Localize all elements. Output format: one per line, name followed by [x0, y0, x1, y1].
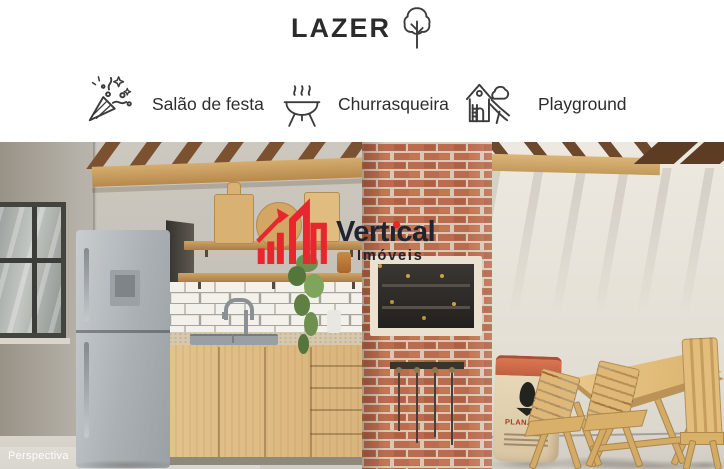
brand-subtitle: Imóveis [357, 248, 435, 264]
white-canister [327, 310, 341, 333]
cabinet-door-gap [310, 347, 312, 457]
page-title: LAZER [291, 12, 391, 44]
drawer-gap [310, 387, 364, 389]
grill-rack [382, 284, 470, 287]
tree-icon [401, 6, 433, 50]
shelf-bracket [198, 282, 201, 289]
hanging-skewer [434, 369, 436, 437]
faucet [224, 298, 254, 320]
watermark-vertical-imoveis: Vertıcal Imóveis [250, 188, 464, 276]
fridge-handle [84, 342, 89, 438]
perspective-render: PLANALTO [0, 142, 724, 469]
window-reflection [0, 207, 61, 333]
hanging-skewer [416, 369, 418, 443]
vertical-imoveis-buildings-logo [256, 190, 336, 272]
cabinet-grain [168, 345, 366, 465]
amenity-label-playground: Playground [538, 94, 627, 115]
amenity-label-churrasqueira: Churrasqueira [338, 94, 449, 115]
sink-basin [190, 334, 278, 345]
window-mullion [0, 258, 61, 263]
brand-i-dot [393, 221, 400, 228]
shelf-bracket [272, 282, 275, 289]
shelf-bracket [352, 282, 355, 289]
chair-seat [680, 432, 724, 445]
cutting-board-rect [214, 194, 254, 244]
shadow [72, 460, 176, 469]
cabinet-toe-kick [168, 457, 366, 465]
watermark-text: Vertıcal Imóveis [336, 218, 435, 264]
shelf-bracket [205, 250, 208, 257]
grill-rack [382, 306, 470, 309]
sink-divider [232, 335, 234, 343]
wood-folding-chair-right [682, 338, 724, 469]
barbecue-icon [281, 80, 323, 128]
header: LAZER [0, 12, 724, 50]
drawer-gap [310, 433, 364, 435]
amenity-label-salao-de-festa: Salão de festa [152, 94, 264, 115]
fridge-door-split [76, 330, 170, 333]
wood-cabinets [168, 345, 366, 465]
cabinet-door-gap [264, 347, 266, 457]
hanging-skewer [398, 369, 400, 431]
drawer-gap [310, 409, 364, 411]
window [0, 202, 66, 338]
drawer-gap [310, 365, 364, 367]
photo-caption: Perspectiva [8, 450, 69, 462]
chair-back [681, 337, 722, 437]
rafter-shadows [492, 168, 724, 323]
water-dispenser [110, 270, 140, 306]
cabinet-door-gap [218, 347, 220, 457]
refrigerator [76, 230, 170, 468]
wood-folding-chairs [532, 368, 682, 469]
hanging-skewer [451, 369, 453, 445]
party-popper-icon [84, 74, 134, 126]
window-mullion [32, 207, 37, 333]
lazer-amenities-panel: LAZER Salão de festa Churrasqueira [0, 0, 724, 469]
playground-icon [464, 80, 512, 126]
pergola-corner-beams [640, 142, 724, 166]
window-sill [0, 338, 70, 344]
freezer-handle [84, 248, 89, 322]
brand-name: Vertıcal [336, 216, 435, 248]
faucet-stem [244, 310, 248, 334]
faucet-spout [222, 312, 226, 319]
